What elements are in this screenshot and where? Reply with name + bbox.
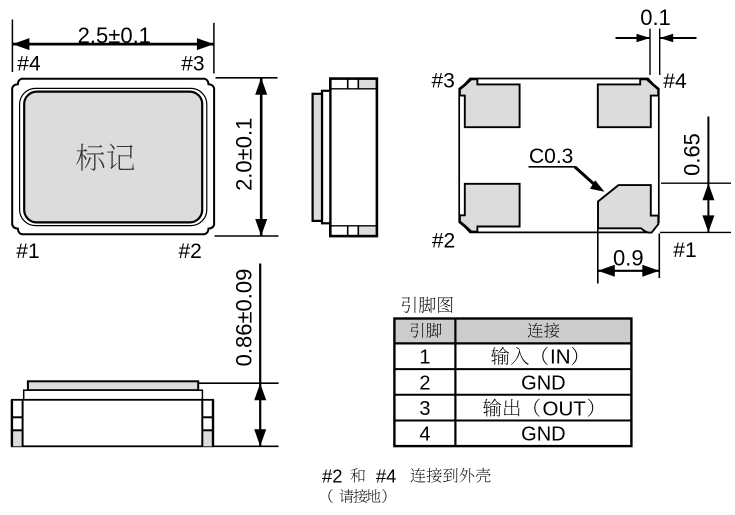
svg-text:0.9: 0.9 — [613, 246, 644, 271]
svg-text:GND: GND — [521, 372, 565, 394]
svg-text:2: 2 — [419, 372, 430, 394]
svg-text:#3: #3 — [181, 53, 204, 76]
svg-text:0.1: 0.1 — [640, 5, 671, 30]
svg-text:#1: #1 — [673, 239, 696, 262]
svg-text:#4: #4 — [663, 70, 687, 93]
svg-text:0.86±0.09: 0.86±0.09 — [231, 269, 256, 367]
svg-text:#3: #3 — [431, 69, 454, 92]
svg-text:#4: #4 — [376, 466, 396, 487]
svg-text:#4: #4 — [17, 53, 41, 76]
svg-text:0.65: 0.65 — [679, 133, 704, 176]
svg-text:3: 3 — [419, 398, 430, 420]
svg-text:2.0±0.1: 2.0±0.1 — [231, 118, 256, 191]
svg-text:#2: #2 — [432, 230, 455, 253]
svg-text:GND: GND — [521, 424, 565, 446]
svg-text:IN: IN — [550, 346, 571, 369]
svg-text:C0.3: C0.3 — [529, 145, 573, 168]
svg-text:4: 4 — [419, 424, 430, 446]
svg-text:#2: #2 — [179, 240, 202, 263]
svg-text:#2: #2 — [322, 466, 342, 487]
svg-text:#1: #1 — [16, 240, 39, 263]
svg-text:2.5±0.1: 2.5±0.1 — [78, 23, 151, 48]
svg-text:OUT: OUT — [543, 397, 587, 420]
svg-text:1: 1 — [419, 347, 430, 369]
